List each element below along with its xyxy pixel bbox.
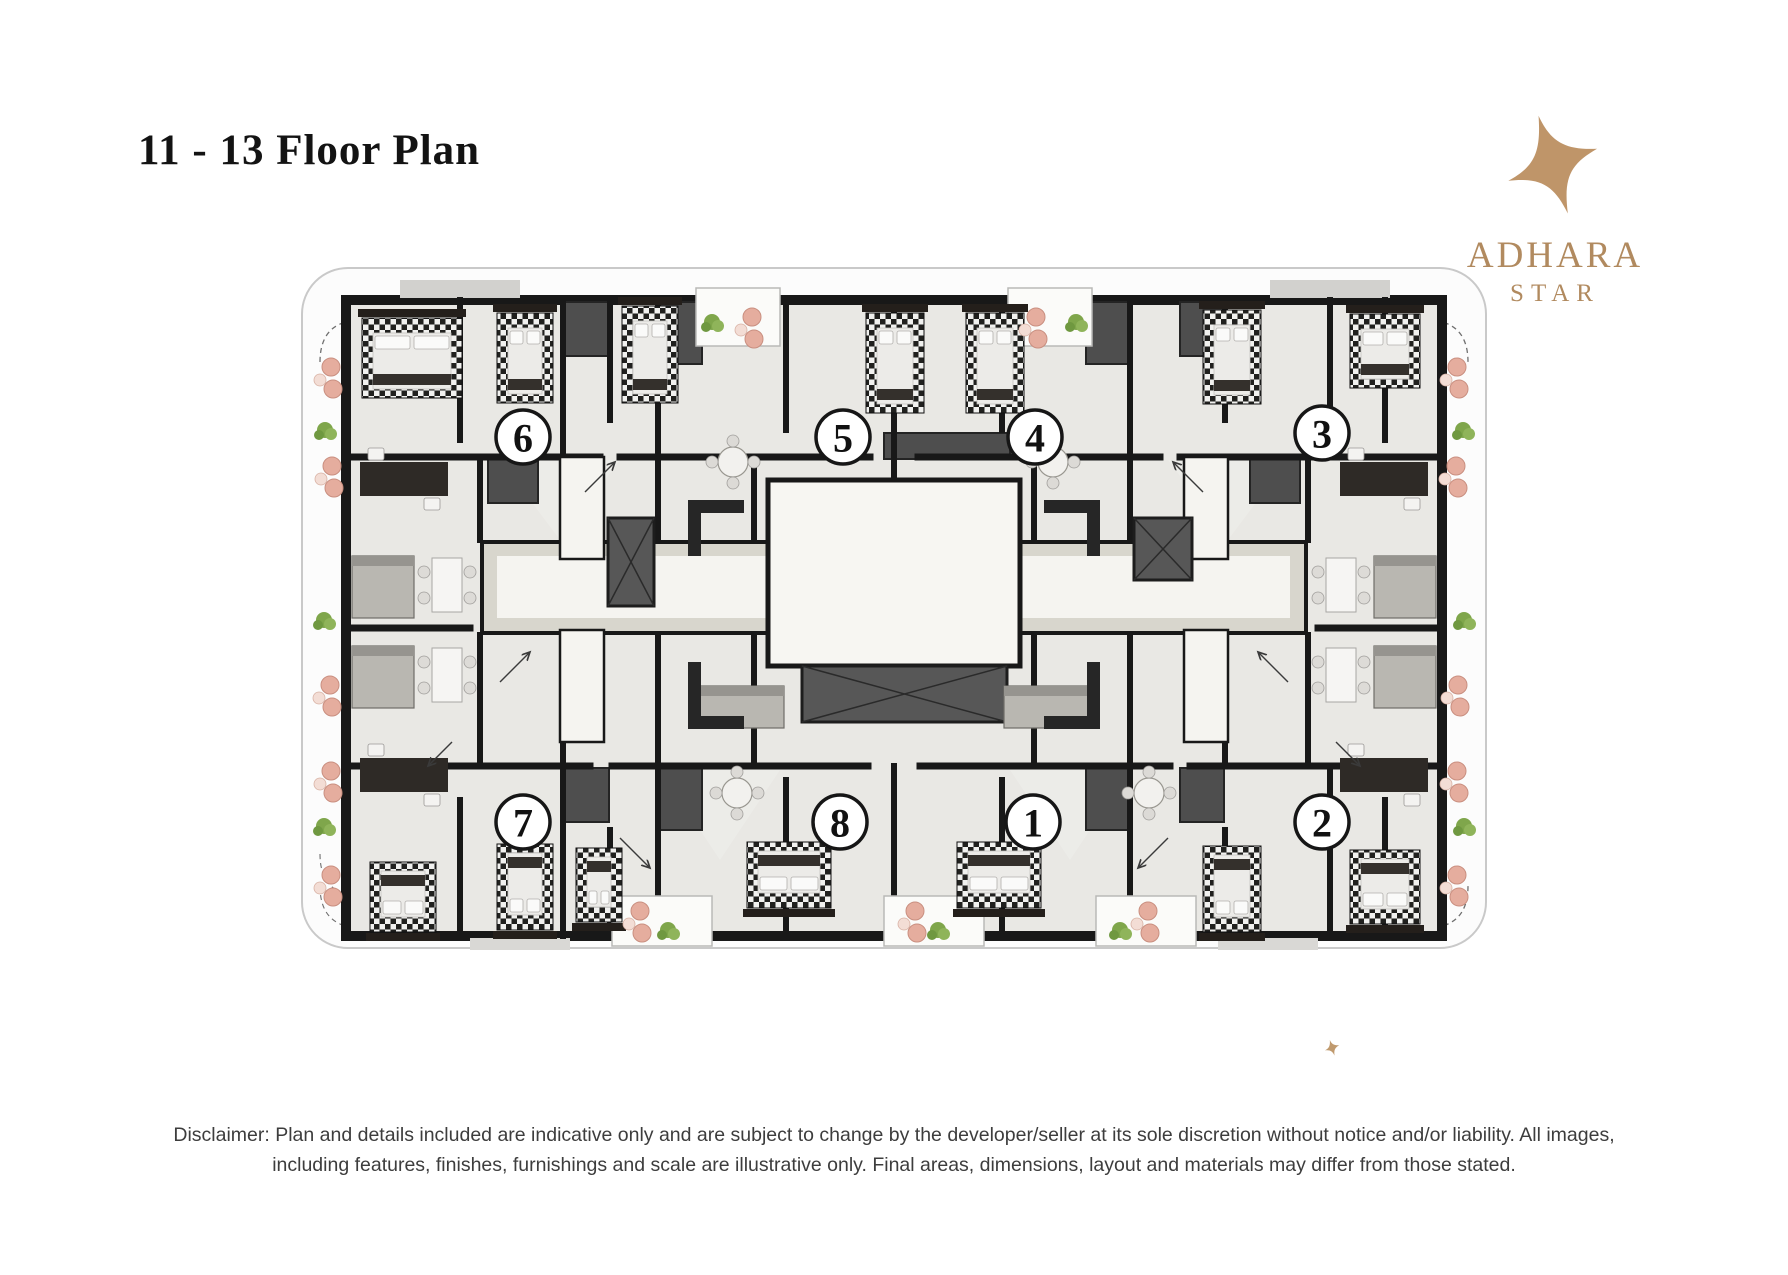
bed [1199, 301, 1265, 404]
unit-badge-6: 6 [496, 410, 550, 464]
unit-badge-3: 3 [1295, 406, 1349, 460]
disclaimer-line-1: Disclaimer: Plan and details included ar… [0, 1120, 1788, 1150]
bed [493, 304, 557, 403]
unit-badge-4: 4 [1008, 410, 1062, 464]
bed [1346, 305, 1424, 388]
unit-badge-5: 5 [816, 410, 870, 464]
unit-badge-2: 2 [1295, 795, 1349, 849]
bed [618, 297, 682, 403]
floor-plan-image: 65437812 [0, 0, 1788, 1275]
bed [366, 862, 440, 941]
bed [862, 304, 928, 413]
bed [953, 842, 1045, 917]
disclaimer: Disclaimer: Plan and details included ar… [0, 1120, 1788, 1180]
unit-badge-8: 8 [813, 795, 867, 849]
bed [358, 309, 466, 398]
svg-text:4: 4 [1025, 416, 1045, 461]
bed [743, 842, 835, 917]
bed [493, 844, 557, 939]
bed [962, 304, 1028, 413]
svg-text:8: 8 [830, 801, 850, 846]
svg-text:6: 6 [513, 416, 533, 461]
unit-badge-1: 1 [1006, 795, 1060, 849]
svg-text:1: 1 [1023, 801, 1043, 846]
page: { "header": { "title": "11 - 13 Floor Pl… [0, 0, 1788, 1275]
svg-text:7: 7 [513, 801, 533, 846]
small-star-accent [1323, 1038, 1342, 1058]
bed [572, 848, 626, 931]
bed [1346, 850, 1424, 933]
disclaimer-line-2: including features, finishes, furnishing… [0, 1150, 1788, 1180]
bed [1199, 846, 1265, 941]
svg-text:3: 3 [1312, 412, 1332, 457]
svg-text:2: 2 [1312, 801, 1332, 846]
svg-text:5: 5 [833, 416, 853, 461]
unit-badge-7: 7 [496, 795, 550, 849]
